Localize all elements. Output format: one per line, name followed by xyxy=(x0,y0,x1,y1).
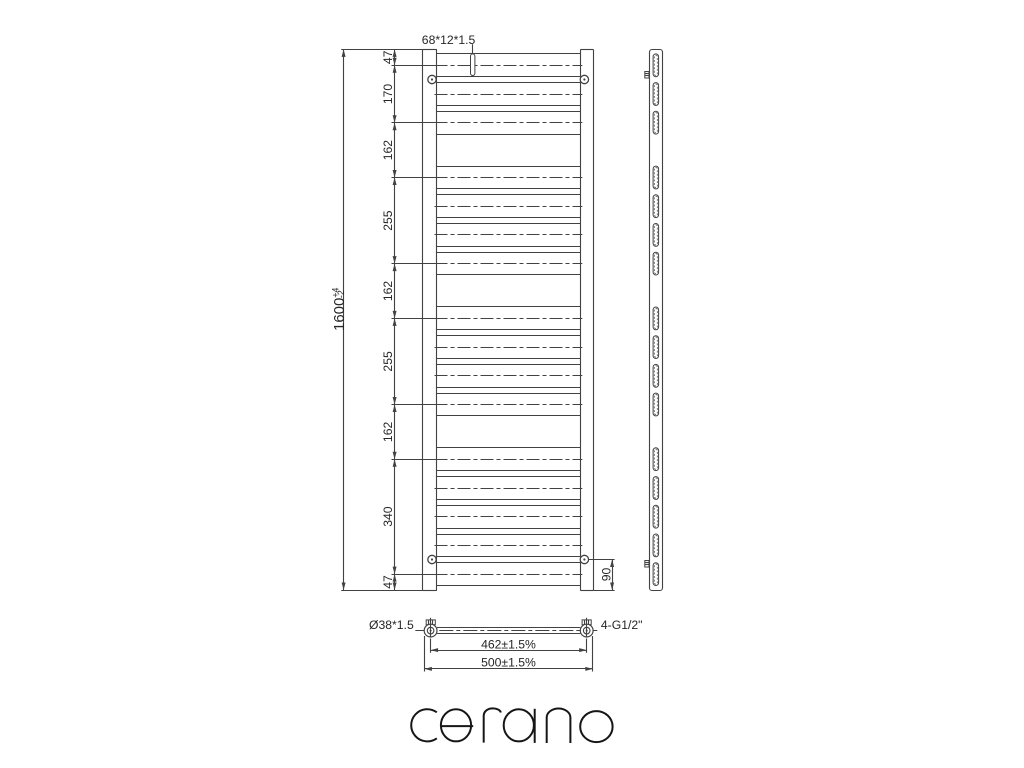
svg-text:170: 170 xyxy=(381,84,395,105)
svg-text:462±1.5%: 462±1.5% xyxy=(481,637,536,651)
svg-text:Ø38*1.5: Ø38*1.5 xyxy=(369,618,414,632)
svg-text:68*12*1.5: 68*12*1.5 xyxy=(422,33,476,47)
svg-text:162: 162 xyxy=(381,281,395,302)
svg-text:90: 90 xyxy=(600,568,614,582)
svg-text:47: 47 xyxy=(381,575,395,589)
svg-text:340: 340 xyxy=(381,506,395,527)
svg-text:255: 255 xyxy=(381,351,395,372)
svg-text:255: 255 xyxy=(381,210,395,231)
svg-text:162: 162 xyxy=(381,140,395,161)
svg-text:500±1.5%: 500±1.5% xyxy=(481,655,536,669)
svg-text:47: 47 xyxy=(381,50,395,64)
svg-text:162: 162 xyxy=(381,422,395,443)
svg-text:1600+4-2: 1600+4-2 xyxy=(331,287,349,331)
svg-text:4-G1/2": 4-G1/2" xyxy=(601,618,643,632)
